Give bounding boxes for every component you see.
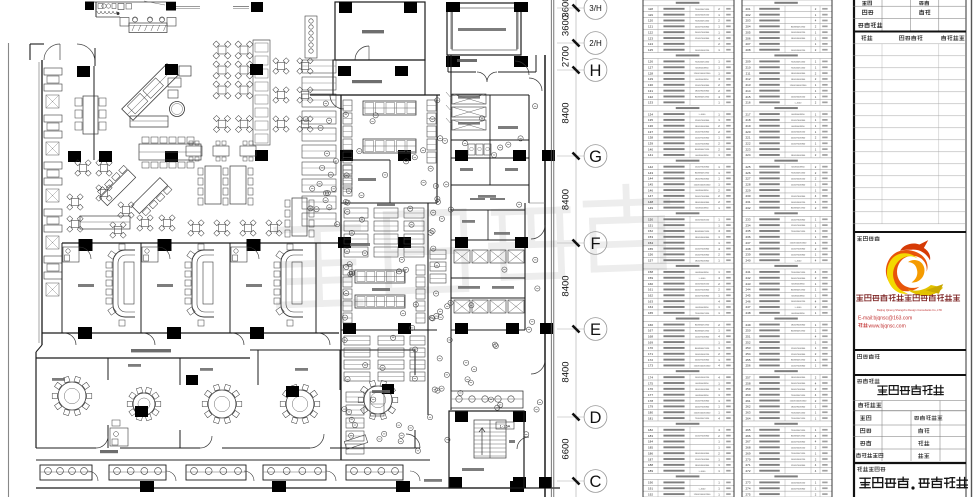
svg-text:180: 180 [648,410,653,414]
svg-text:167: 167 [648,329,653,333]
svg-text:146: 146 [648,188,653,192]
svg-text:2000X700X800: 2000X700X800 [791,389,806,391]
svg-text:1200X700X800: 1200X700X800 [791,465,806,467]
svg-text:171: 171 [648,352,653,356]
svg-text:223: 223 [745,147,750,151]
svg-text:131: 131 [648,89,653,93]
svg-text:274: 274 [745,487,750,491]
svg-text:H: H [590,62,602,80]
svg-text:1800X900X800: 1800X900X800 [695,126,710,128]
svg-text:236: 236 [745,235,750,239]
svg-text:2000X700X800: 2000X700X800 [695,196,710,198]
svg-text:210: 210 [745,66,750,70]
svg-text:L-1000: L-1000 [699,471,706,473]
svg-text:1200X700X800: 1200X700X800 [791,366,806,368]
svg-text:189: 189 [648,469,653,473]
svg-text:8400: 8400 [561,189,572,210]
svg-text:2000X700X800: 2000X700X800 [695,360,710,362]
svg-text:1000X500X250: 1000X500X250 [791,132,806,134]
svg-text:600X600X850: 600X600X850 [791,284,805,286]
svg-text:217: 217 [745,112,750,116]
svg-text:119: 119 [648,13,653,17]
svg-text:800X800X1950: 800X800X1950 [695,173,710,175]
svg-text:263: 263 [745,410,750,414]
svg-text:L-1000: L-1000 [699,278,706,280]
svg-text:158: 158 [648,270,653,274]
svg-text:269: 269 [745,451,750,455]
svg-text:133: 133 [648,101,653,105]
svg-text:1800X900X800: 1800X900X800 [695,389,710,391]
svg-text:229: 229 [745,188,750,192]
svg-text:235: 235 [745,229,750,233]
svg-text:242: 242 [745,276,750,280]
svg-text:1200X700X800: 1200X700X800 [791,254,806,256]
svg-text:600X600X850: 600X600X850 [791,114,805,116]
svg-text:1-15A: 1-15A [500,424,511,429]
svg-text:145: 145 [648,182,653,186]
svg-text:135: 135 [648,118,653,122]
svg-text:237: 237 [745,241,750,245]
svg-text:239: 239 [745,253,750,257]
svg-text:151: 151 [648,223,653,227]
svg-text:600X600X850: 600X600X850 [791,313,805,315]
svg-text:3600: 3600 [561,15,572,36]
svg-text:1800X900X800: 1800X900X800 [791,377,806,379]
svg-text:254: 254 [745,352,750,356]
svg-text:750X450X1350: 750X450X1350 [695,9,710,11]
svg-text:1800X900X800: 1800X900X800 [695,202,710,204]
svg-text:800X800X1950: 800X800X1950 [791,330,806,332]
svg-text:216: 216 [745,101,750,105]
svg-text:214: 214 [745,89,750,93]
svg-text:8400: 8400 [561,361,572,382]
svg-text:1200X700X800: 1200X700X800 [695,38,710,40]
svg-text:174: 174 [648,375,653,379]
svg-text:1000X500X250: 1000X500X250 [695,15,710,17]
svg-text:126: 126 [648,60,653,64]
svg-text:800X800X1950: 800X800X1950 [695,330,710,332]
svg-text:800X800X1950: 800X800X1950 [791,290,806,292]
svg-text:130: 130 [648,83,653,87]
svg-text:140: 140 [648,147,653,151]
svg-text:1000X500X250: 1000X500X250 [695,284,710,286]
svg-text:1800X900X800: 1800X900X800 [791,155,806,157]
svg-text:172: 172 [648,358,653,362]
svg-text:272: 272 [745,469,750,473]
svg-text:203: 203 [745,19,750,23]
svg-text:232: 232 [745,206,750,210]
svg-text:800X800X1950: 800X800X1950 [791,436,806,438]
svg-text:1800X900X800: 1800X900X800 [791,325,806,327]
svg-text:1800X900X800: 1800X900X800 [695,237,710,239]
svg-text:124: 124 [648,42,653,46]
svg-text:1200X1000X2300: 1200X1000X2300 [694,494,711,496]
svg-text:152: 152 [648,229,653,233]
svg-text:202: 202 [745,13,750,17]
svg-text:243: 243 [745,282,750,286]
svg-text:123: 123 [648,36,653,40]
svg-text:273: 273 [745,481,750,485]
svg-text:1800X900X800: 1800X900X800 [791,73,806,75]
svg-text:F: F [590,235,600,253]
svg-text:125: 125 [648,48,653,52]
svg-text:134: 134 [648,112,653,116]
svg-text:169: 169 [648,340,653,344]
svg-text:1000X500X250: 1000X500X250 [791,482,806,484]
svg-text:213: 213 [745,83,750,87]
svg-text:149: 149 [648,206,653,210]
svg-text:144: 144 [648,177,653,181]
svg-text:2000X700X800: 2000X700X800 [791,137,806,139]
svg-text:800X800X1950: 800X800X1950 [695,348,710,350]
svg-text:261: 261 [745,399,750,403]
svg-text:259: 259 [745,387,750,391]
svg-text:8400: 8400 [561,275,572,296]
svg-text:260: 260 [745,393,750,397]
svg-text:165: 165 [648,311,653,315]
svg-text:1000X500X250: 1000X500X250 [791,459,806,461]
svg-text:238: 238 [745,247,750,251]
svg-text:G: G [589,148,602,166]
svg-text:1800X900X800: 1800X900X800 [791,79,806,81]
svg-text:136: 136 [648,124,653,128]
svg-text:129: 129 [648,77,653,81]
svg-text:1200X1000X2300: 1200X1000X2300 [694,73,711,75]
svg-text:188: 188 [648,463,653,467]
svg-text:1800X900X800: 1800X900X800 [791,406,806,408]
svg-text:225: 225 [745,165,750,169]
svg-text:163: 163 [648,299,653,303]
svg-text:159: 159 [648,276,653,280]
svg-text:750X450X1350: 750X450X1350 [791,173,806,175]
svg-text:181: 181 [648,416,653,420]
svg-text:118: 118 [648,7,653,11]
svg-text:253: 253 [745,346,750,350]
svg-text:207: 207 [745,42,750,46]
svg-text:178: 178 [648,399,653,403]
svg-text:8400: 8400 [561,102,572,123]
svg-text:247: 247 [745,305,750,309]
svg-text:186: 186 [648,451,653,455]
svg-text:267: 267 [745,440,750,444]
svg-text:205: 205 [745,30,750,34]
svg-text:1200X1000X2300: 1200X1000X2300 [694,184,711,186]
svg-text:1800X900X800: 1800X900X800 [695,91,710,93]
svg-text:231: 231 [745,200,750,204]
svg-text:1200X700X800: 1200X700X800 [695,137,710,139]
svg-text:148: 148 [648,200,653,204]
svg-text:275: 275 [745,492,750,496]
svg-text:157: 157 [648,258,653,262]
svg-text:1800X900X800: 1800X900X800 [695,465,710,467]
svg-text:1800X900X800: 1800X900X800 [695,260,710,262]
svg-text:E-mail:bjqnsc@163.com: E-mail:bjqnsc@163.com [858,316,912,322]
svg-text:266: 266 [745,434,750,438]
svg-text:800X800X1950: 800X800X1950 [695,231,710,233]
svg-text:190: 190 [648,481,653,485]
svg-text:1000X500X250: 1000X500X250 [695,354,710,356]
svg-text:800X800X1950: 800X800X1950 [791,26,806,28]
svg-text:750X450X1350: 750X450X1350 [791,453,806,455]
svg-text:268: 268 [745,446,750,450]
svg-text:166: 166 [648,323,653,327]
svg-text:750X450X1350: 750X450X1350 [791,67,806,69]
svg-text:221: 221 [745,136,750,140]
svg-text:1500X760X800: 1500X760X800 [791,120,806,122]
svg-text:1800X900X800: 1800X900X800 [791,38,806,40]
svg-text:271: 271 [745,463,750,467]
svg-text:750X450X1350: 750X450X1350 [695,61,710,63]
svg-text:D: D [590,409,602,427]
svg-text:1200X700X800: 1200X700X800 [791,249,806,251]
svg-text:750X450X1350: 750X450X1350 [695,313,710,315]
svg-text:800X800X1950: 800X800X1950 [791,208,806,210]
svg-text:750X450X1350: 750X450X1350 [695,418,710,420]
svg-text:143: 143 [648,171,653,175]
svg-text:248: 248 [745,311,750,315]
svg-text:L-1000: L-1000 [699,488,706,490]
svg-text:1200X1000X2300: 1200X1000X2300 [694,412,711,414]
svg-text:132: 132 [648,95,653,99]
svg-text:1200X700X800: 1200X700X800 [791,184,806,186]
svg-text:204: 204 [745,25,750,29]
svg-text:138: 138 [648,136,653,140]
svg-text:1500X760X800: 1500X760X800 [695,459,710,461]
svg-text:6600: 6600 [561,438,572,459]
svg-text:600X600X850: 600X600X850 [695,307,709,309]
svg-text:1500X760X800: 1500X760X800 [695,132,710,134]
svg-text:E: E [590,321,601,339]
svg-text:222: 222 [745,142,750,146]
svg-text:160: 160 [648,282,653,286]
svg-text:1000X500X250: 1000X500X250 [695,219,710,221]
svg-text:2000X700X800: 2000X700X800 [791,488,806,490]
svg-text:750X450X1350: 750X450X1350 [791,412,806,414]
svg-text:128: 128 [648,71,653,75]
svg-text:2000X700X800: 2000X700X800 [695,32,710,34]
svg-text:1500X760X800: 1500X760X800 [695,401,710,403]
svg-text:179: 179 [648,405,653,409]
svg-text:191: 191 [648,487,653,491]
svg-text:1200X700X800: 1200X700X800 [791,225,806,227]
svg-text:230: 230 [745,194,750,198]
svg-text:208: 208 [745,48,750,52]
svg-text:219: 219 [745,124,750,128]
svg-text:184: 184 [648,440,653,444]
svg-text:162: 162 [648,294,653,298]
svg-text:600X600X850: 600X600X850 [695,383,709,385]
svg-text:2000X700X800: 2000X700X800 [695,295,710,297]
svg-text:C: C [590,473,602,491]
svg-text:206: 206 [745,36,750,40]
svg-text:3/H: 3/H [589,4,602,13]
svg-text:137: 137 [648,130,653,134]
svg-text:1200X1000X2300: 1200X1000X2300 [694,366,711,368]
svg-text:600X600X850: 600X600X850 [791,167,805,169]
svg-text:1200X700X800: 1200X700X800 [791,348,806,350]
svg-text:120: 120 [648,19,653,23]
svg-text:1500X760X800: 1500X760X800 [695,254,710,256]
svg-text:L-1000: L-1000 [699,114,706,116]
svg-text:L-1000: L-1000 [795,102,802,104]
svg-text:164: 164 [648,305,653,309]
svg-text:227: 227 [745,177,750,181]
svg-text:220: 220 [745,130,750,134]
svg-text:1000X500X250: 1000X500X250 [695,377,710,379]
svg-text:176: 176 [648,387,653,391]
svg-text:600X600X850: 600X600X850 [791,295,805,297]
svg-text:750X450X1350: 750X450X1350 [791,272,806,274]
svg-text:185: 185 [648,446,653,450]
svg-text:270: 270 [745,457,750,461]
svg-text:750X450X1350: 750X450X1350 [791,231,806,233]
svg-text:175: 175 [648,381,653,385]
svg-text:600X600X850: 600X600X850 [695,190,709,192]
svg-text:2700: 2700 [561,46,572,67]
svg-text:264: 264 [745,416,750,420]
svg-text:139: 139 [648,142,653,146]
svg-text:L-1000: L-1000 [795,260,802,262]
svg-text:750X450X1350: 750X450X1350 [791,430,806,432]
svg-text:2000X700X800: 2000X700X800 [695,406,710,408]
svg-text:173: 173 [648,364,653,368]
svg-text:1500X760X800: 1500X760X800 [791,219,806,221]
svg-text:233: 233 [745,218,750,222]
svg-text:1500X760X800: 1500X760X800 [791,196,806,198]
svg-text:234: 234 [745,223,750,227]
svg-text:L-1000: L-1000 [795,307,802,309]
svg-text:153: 153 [648,235,653,239]
svg-text:156: 156 [648,253,653,257]
svg-text:215: 215 [745,95,750,99]
svg-text:1000X500X250: 1000X500X250 [791,32,806,34]
svg-text:168: 168 [648,334,653,338]
svg-text:600X600X850: 600X600X850 [791,126,805,128]
svg-text:1200X700X800: 1200X700X800 [695,436,710,438]
svg-text:1000X500X250: 1000X500X250 [791,50,806,52]
svg-text:257: 257 [745,375,750,379]
svg-text:800X800X1950: 800X800X1950 [695,97,710,99]
svg-text:1200X700X800: 1200X700X800 [695,336,710,338]
svg-text:800X800X1950: 800X800X1950 [695,149,710,151]
svg-text:224: 224 [745,153,750,157]
svg-text:2000X700X800: 2000X700X800 [791,383,806,385]
svg-text:122: 122 [648,30,653,34]
svg-text:161: 161 [648,288,653,292]
svg-text:212: 212 [745,77,750,81]
svg-text:265: 265 [745,428,750,432]
svg-text:121: 121 [648,25,653,29]
svg-text:600X600X850: 600X600X850 [695,208,709,210]
svg-text:1200X700X800: 1200X700X800 [695,249,710,251]
svg-text:147: 147 [648,194,653,198]
svg-text:228: 228 [745,182,750,186]
svg-text:141: 141 [648,153,653,157]
svg-text:2000X700X800: 2000X700X800 [695,290,710,292]
svg-text:192: 192 [648,492,653,496]
svg-text:1500X760X800: 1500X760X800 [695,167,710,169]
svg-text:250: 250 [745,329,750,333]
svg-text:142: 142 [648,165,653,169]
svg-text:1000X500X250: 1000X500X250 [791,202,806,204]
svg-text:154: 154 [648,241,653,245]
svg-text:1200X700X800: 1200X700X800 [695,143,710,145]
svg-text:245: 245 [745,294,750,298]
svg-text:750X450X1350: 750X450X1350 [791,418,806,420]
svg-text:1200X1000X2300: 1200X1000X2300 [790,401,807,403]
svg-text:1800X900X800: 1800X900X800 [695,453,710,455]
svg-text:1200X700X800: 1200X700X800 [791,354,806,356]
svg-text:244: 244 [745,288,750,292]
svg-text:187: 187 [648,457,653,461]
svg-text:209: 209 [745,60,750,64]
svg-text:246: 246 [745,299,750,303]
svg-text:1000X500X250: 1000X500X250 [791,301,806,303]
svg-text:240: 240 [745,258,750,262]
svg-text:2000X700X800: 2000X700X800 [791,278,806,280]
svg-text:201: 201 [745,7,750,11]
svg-text:241: 241 [745,270,750,274]
svg-text:226: 226 [745,171,750,175]
svg-text:2/H: 2/H [589,39,602,48]
svg-text:211: 211 [746,71,751,75]
svg-text:2000X700X800: 2000X700X800 [791,442,806,444]
svg-text:Beijing Qineng Shangchu Design: Beijing Qineng Shangchu Design Consultan… [877,308,942,312]
svg-text:218: 218 [745,118,750,122]
svg-text:750X450X1350: 750X450X1350 [791,61,806,63]
svg-text:2000X700X800: 2000X700X800 [695,26,710,28]
svg-text:600X600X850: 600X600X850 [695,272,709,274]
svg-text:183: 183 [648,434,653,438]
svg-text:1500X760X800: 1500X760X800 [695,85,710,87]
svg-text:1200X1000X2300: 1200X1000X2300 [790,85,807,87]
svg-text:1000X500X250: 1000X500X250 [791,178,806,180]
svg-text:1200X1000X2300: 1200X1000X2300 [790,243,807,245]
svg-text:600X600X850: 600X600X850 [695,67,709,69]
svg-text:127: 127 [648,66,653,70]
svg-text:249: 249 [745,323,750,327]
svg-text:1800X900X800: 1800X900X800 [695,178,710,180]
svg-text:155: 155 [648,247,653,251]
svg-text:170: 170 [648,346,653,350]
svg-text:256: 256 [745,364,750,368]
svg-text:262: 262 [745,405,750,409]
svg-text:800X800X1950: 800X800X1950 [791,360,806,362]
svg-text:150: 150 [648,218,653,222]
svg-text:750X450X1350: 750X450X1350 [791,395,806,397]
svg-text:182: 182 [648,428,653,432]
svg-text:800X800X1950: 800X800X1950 [695,325,710,327]
svg-text:1000X500X250: 1000X500X250 [791,97,806,99]
svg-text:www.bjqnsc.com: www.bjqnsc.com [869,323,906,329]
svg-text:1200X700X800: 1200X700X800 [695,120,710,122]
svg-text:258: 258 [745,381,750,385]
svg-text:252: 252 [745,340,750,344]
svg-text:1000X500X250: 1000X500X250 [695,50,710,52]
svg-text:255: 255 [745,358,750,362]
svg-text:177: 177 [648,393,653,397]
svg-text:600X600X850: 600X600X850 [695,395,709,397]
svg-text:251: 251 [745,334,750,338]
svg-text:600X600X850: 600X600X850 [695,155,709,157]
svg-text:750X450X1350: 750X450X1350 [695,21,710,23]
svg-text:1200X700X800: 1200X700X800 [791,143,806,145]
svg-text:600X600X850: 600X600X850 [695,79,709,81]
svg-text:1000X500X250: 1000X500X250 [791,447,806,449]
